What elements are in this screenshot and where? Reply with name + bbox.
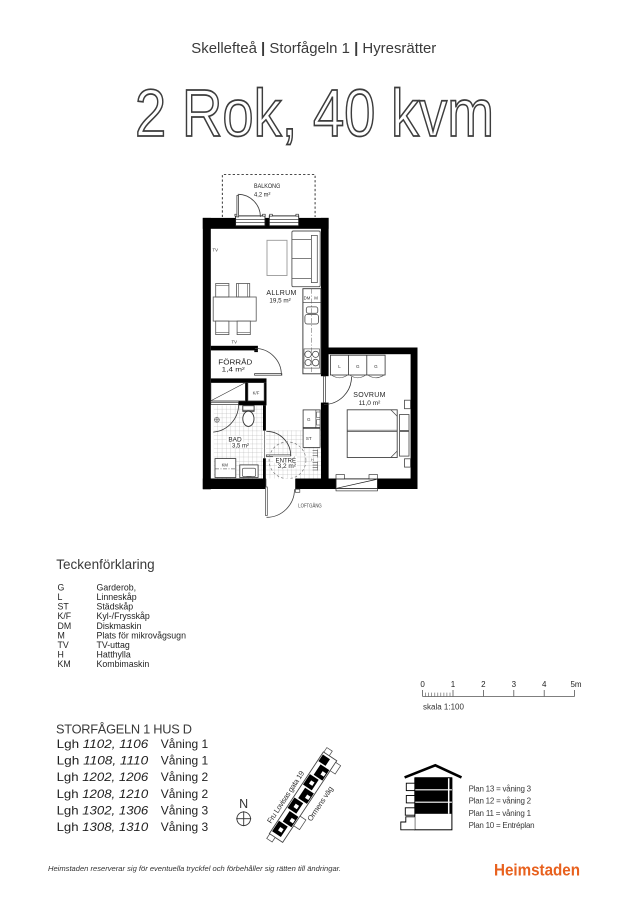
- svg-text:TV-uttag: TV-uttag: [97, 640, 130, 650]
- svg-text:K/F: K/F: [253, 390, 260, 395]
- svg-text:5m: 5m: [570, 680, 581, 689]
- svg-text:3: 3: [512, 680, 517, 689]
- svg-text:G: G: [356, 364, 360, 369]
- svg-text:Lgh 1202, 1206: Lgh 1202, 1206: [57, 770, 149, 784]
- svg-text:Lgh 1108, 1110: Lgh 1108, 1110: [57, 754, 149, 768]
- svg-text:G: G: [374, 364, 378, 369]
- svg-text:SOVRUM: SOVRUM: [353, 392, 386, 399]
- svg-text:19,5 m²: 19,5 m²: [269, 298, 290, 305]
- svg-text:Våning 2: Våning 2: [161, 770, 209, 784]
- svg-text:KM: KM: [222, 462, 229, 467]
- svg-text:Plan 13 = våning 3: Plan 13 = våning 3: [469, 785, 532, 794]
- svg-text:Kyl-/Frysskåp: Kyl-/Frysskåp: [97, 611, 150, 621]
- svg-text:Garderob,: Garderob,: [97, 583, 137, 593]
- svg-text:4: 4: [542, 680, 547, 689]
- svg-text:Våning 3: Våning 3: [161, 803, 209, 817]
- svg-text:STORFÅGELN 1 HUS D: STORFÅGELN 1 HUS D: [56, 722, 192, 737]
- svg-text:Hatthylla: Hatthylla: [97, 650, 131, 660]
- svg-text:Plan 11 = våning 1: Plan 11 = våning 1: [469, 809, 532, 818]
- svg-text:KM: KM: [58, 659, 71, 669]
- svg-text:K/F: K/F: [58, 611, 72, 621]
- svg-text:G: G: [58, 583, 65, 593]
- svg-text:3,2 m²: 3,2 m²: [278, 464, 296, 470]
- svg-text:Våning 2: Våning 2: [161, 787, 209, 801]
- svg-text:L: L: [58, 592, 63, 602]
- svg-text:1: 1: [451, 680, 456, 689]
- svg-text:4,2 m²: 4,2 m²: [254, 193, 270, 199]
- svg-text:FÖRRÅD: FÖRRÅD: [218, 357, 252, 366]
- svg-text:skala 1:100: skala 1:100: [423, 703, 464, 712]
- svg-text:Skellefteå | Storfågeln 1 | Hy: Skellefteå | Storfågeln 1 | Hyresrätter: [191, 40, 436, 57]
- svg-text:H: H: [58, 650, 64, 660]
- svg-text:ALLRUM: ALLRUM: [266, 290, 296, 297]
- svg-text:N: N: [239, 797, 248, 811]
- svg-text:Plan 12 = våning 2: Plan 12 = våning 2: [469, 797, 532, 806]
- svg-text:11,0 m²: 11,0 m²: [359, 400, 381, 407]
- svg-text:Lgh 1308, 1310: Lgh 1308, 1310: [57, 820, 149, 834]
- svg-text:TV: TV: [58, 640, 69, 650]
- svg-text:M: M: [58, 630, 65, 640]
- svg-text:ENTRÉ: ENTRÉ: [276, 455, 297, 464]
- svg-text:TV: TV: [213, 248, 219, 253]
- svg-text:Kombimaskin: Kombimaskin: [97, 659, 150, 669]
- svg-text:ST: ST: [58, 602, 70, 612]
- svg-text:Våning 3: Våning 3: [161, 820, 209, 834]
- svg-text:0: 0: [420, 680, 425, 689]
- svg-text:Diskmaskin: Diskmaskin: [97, 621, 142, 631]
- svg-text:3,5 m²: 3,5 m²: [232, 443, 249, 449]
- svg-text:2 Rok, 40 kvm: 2 Rok, 40 kvm: [135, 76, 494, 151]
- svg-text:Teckenförklaring: Teckenförklaring: [56, 557, 154, 572]
- svg-text:Våning 1: Våning 1: [161, 754, 209, 768]
- svg-text:1,4 m²: 1,4 m²: [222, 366, 245, 373]
- svg-text:G: G: [307, 417, 311, 422]
- svg-text:Lgh 1302, 1306: Lgh 1302, 1306: [57, 803, 149, 817]
- svg-text:Heimstaden: Heimstaden: [494, 861, 580, 880]
- svg-text:Plan 10 = Entréplan: Plan 10 = Entréplan: [469, 821, 535, 830]
- svg-text:ST: ST: [306, 436, 312, 441]
- svg-text:DM: DM: [58, 621, 72, 631]
- svg-text:Lgh 1208, 1210: Lgh 1208, 1210: [57, 787, 149, 801]
- svg-text:Heimstaden reserverar sig för: Heimstaden reserverar sig för eventuella…: [48, 865, 341, 873]
- svg-text:LOFTGÅNG: LOFTGÅNG: [298, 502, 322, 509]
- svg-text:BALKONG: BALKONG: [254, 183, 281, 190]
- svg-text:DM: DM: [304, 296, 311, 301]
- svg-text:Plats för mikrovågsugn: Plats för mikrovågsugn: [97, 630, 187, 640]
- svg-text:TV: TV: [232, 340, 238, 345]
- svg-text:Våning 1: Våning 1: [161, 737, 209, 751]
- svg-text:Lgh 1102, 1106: Lgh 1102, 1106: [57, 737, 149, 751]
- svg-text:M: M: [314, 296, 318, 301]
- svg-text:Linneskåp: Linneskåp: [97, 592, 137, 602]
- svg-text:2: 2: [481, 680, 486, 689]
- svg-text:Städskåp: Städskåp: [97, 602, 134, 612]
- svg-text:H: H: [311, 458, 314, 462]
